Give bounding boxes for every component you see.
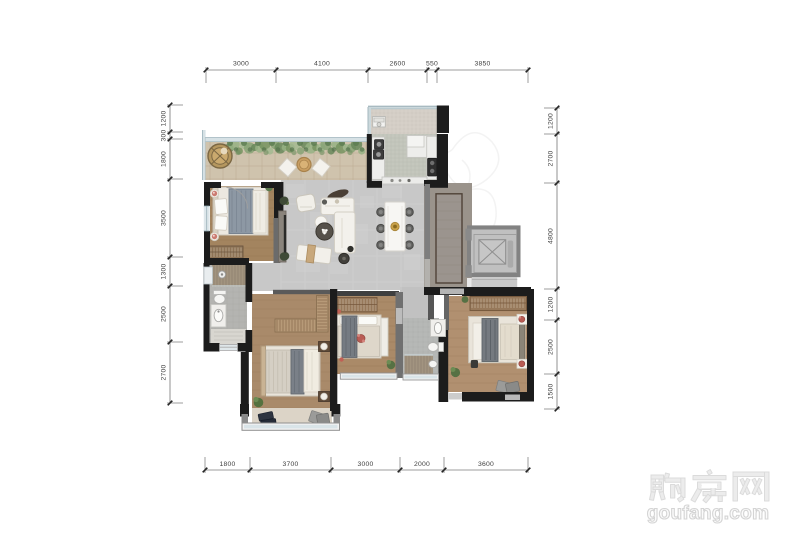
svg-text:1800: 1800: [220, 461, 236, 468]
svg-text:1200: 1200: [548, 297, 555, 313]
svg-text:2000: 2000: [414, 461, 430, 468]
svg-text:2700: 2700: [161, 365, 168, 381]
svg-text:3500: 3500: [161, 210, 168, 226]
svg-text:3000: 3000: [233, 61, 249, 68]
svg-text:3850: 3850: [475, 61, 491, 68]
svg-text:2600: 2600: [390, 61, 406, 68]
svg-text:2700: 2700: [548, 151, 555, 167]
svg-text:1800: 1800: [161, 151, 168, 167]
svg-text:1200: 1200: [548, 113, 555, 129]
svg-text:3000: 3000: [358, 461, 374, 468]
svg-text:3600: 3600: [478, 461, 494, 468]
svg-text:300: 300: [161, 130, 168, 142]
svg-text:1500: 1500: [548, 384, 555, 400]
svg-text:550: 550: [426, 61, 438, 68]
svg-text:goufang.com: goufang.com: [647, 503, 770, 524]
svg-text:2500: 2500: [548, 339, 555, 355]
svg-text:4800: 4800: [548, 228, 555, 244]
svg-text:3700: 3700: [283, 461, 299, 468]
svg-text:1200: 1200: [161, 111, 168, 127]
svg-text:4100: 4100: [314, 61, 330, 68]
svg-text:2500: 2500: [161, 306, 168, 322]
svg-text:1300: 1300: [161, 264, 168, 280]
